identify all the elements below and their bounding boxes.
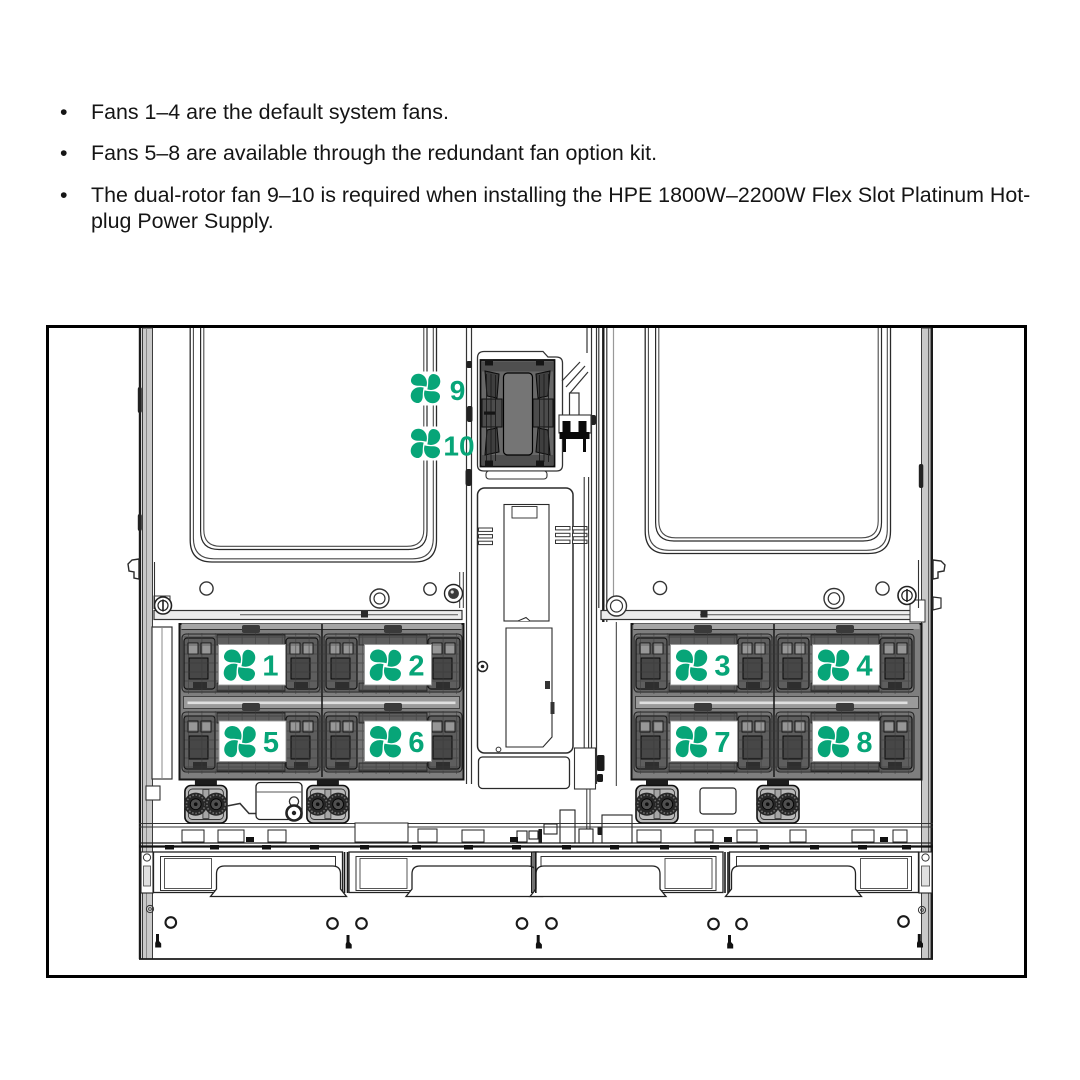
svg-text:1: 1 bbox=[262, 651, 278, 683]
svg-text:4: 4 bbox=[856, 651, 872, 683]
svg-text:6: 6 bbox=[408, 727, 424, 759]
svg-text:7: 7 bbox=[714, 727, 730, 759]
svg-text:10: 10 bbox=[443, 431, 474, 462]
svg-text:3: 3 bbox=[714, 651, 730, 683]
svg-text:2: 2 bbox=[408, 651, 424, 683]
svg-text:8: 8 bbox=[856, 727, 872, 759]
svg-text:9: 9 bbox=[450, 375, 466, 406]
svg-text:5: 5 bbox=[263, 727, 279, 759]
